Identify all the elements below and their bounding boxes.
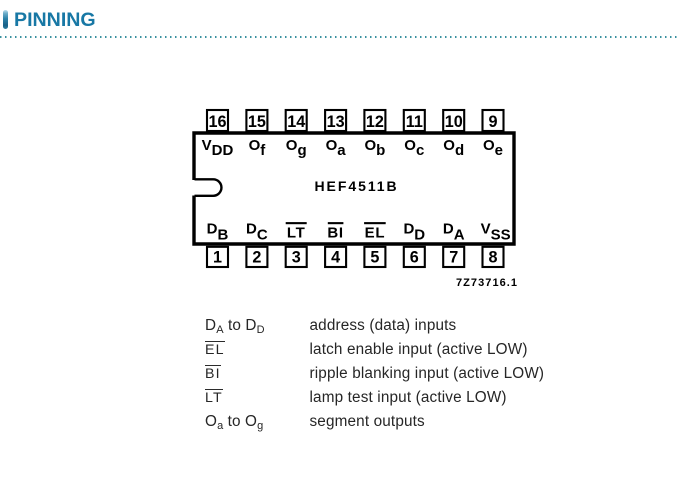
svg-text:9: 9 (488, 113, 497, 131)
svg-text:HEF4511B: HEF4511B (315, 178, 399, 194)
svg-text:11: 11 (406, 113, 423, 131)
svg-text:6: 6 (410, 249, 419, 267)
svg-text:10: 10 (445, 113, 463, 131)
svg-text:3: 3 (292, 249, 301, 267)
svg-text:BI: BI (327, 224, 343, 241)
svg-text:16: 16 (208, 113, 226, 131)
svg-text:15: 15 (248, 113, 266, 131)
svg-text:13: 13 (327, 113, 345, 131)
svg-text:EL: EL (365, 224, 386, 241)
svg-text:5: 5 (370, 249, 379, 267)
svg-text:8: 8 (488, 249, 497, 267)
svg-text:1: 1 (213, 249, 222, 267)
svg-text:LT: LT (287, 224, 306, 241)
svg-text:2: 2 (252, 249, 261, 267)
svg-text:7Z73716.1: 7Z73716.1 (456, 277, 518, 289)
svg-text:7: 7 (449, 249, 458, 267)
svg-text:14: 14 (287, 113, 305, 131)
svg-text:12: 12 (366, 113, 384, 131)
svg-text:4: 4 (331, 249, 340, 267)
